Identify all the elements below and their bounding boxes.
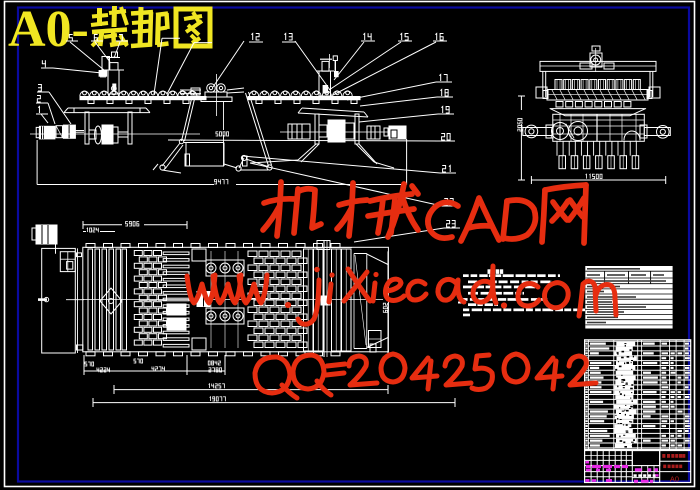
svg-text:A0: A0 [670, 474, 679, 483]
svg-text:A0-: A0- [8, 1, 89, 58]
